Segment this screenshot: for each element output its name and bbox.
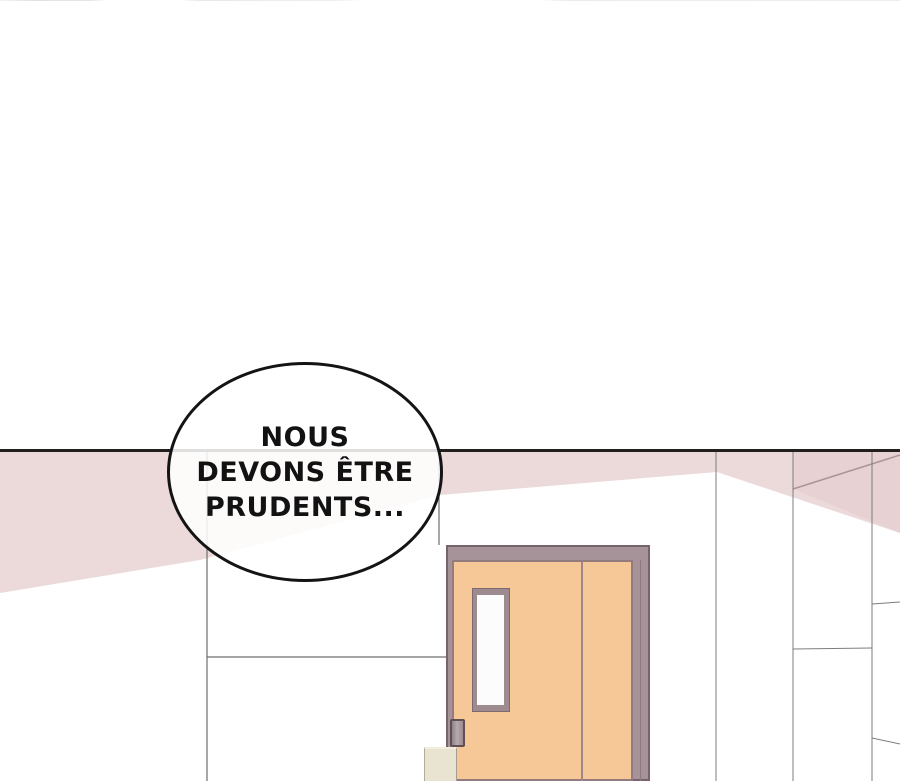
- door-jamb-line: [640, 560, 641, 781]
- door-handle: [450, 719, 465, 747]
- door-window-glass: [477, 595, 504, 705]
- speech-line-3: PRUDENTS...: [205, 490, 405, 525]
- speech-bubble: NOUS DEVONS ÊTRE PRUDENTS...: [167, 362, 443, 582]
- speech-line-1: NOUS: [261, 420, 350, 455]
- door-panel-divider-line: [581, 562, 583, 781]
- comic-panel: NOUS DEVONS ÊTRE PRUDENTS...: [0, 0, 900, 781]
- speech-line-2: DEVONS ÊTRE: [196, 455, 413, 490]
- ceiling-line: [0, 449, 900, 452]
- waste-bin: [424, 747, 457, 781]
- corner-shadow: [793, 451, 900, 533]
